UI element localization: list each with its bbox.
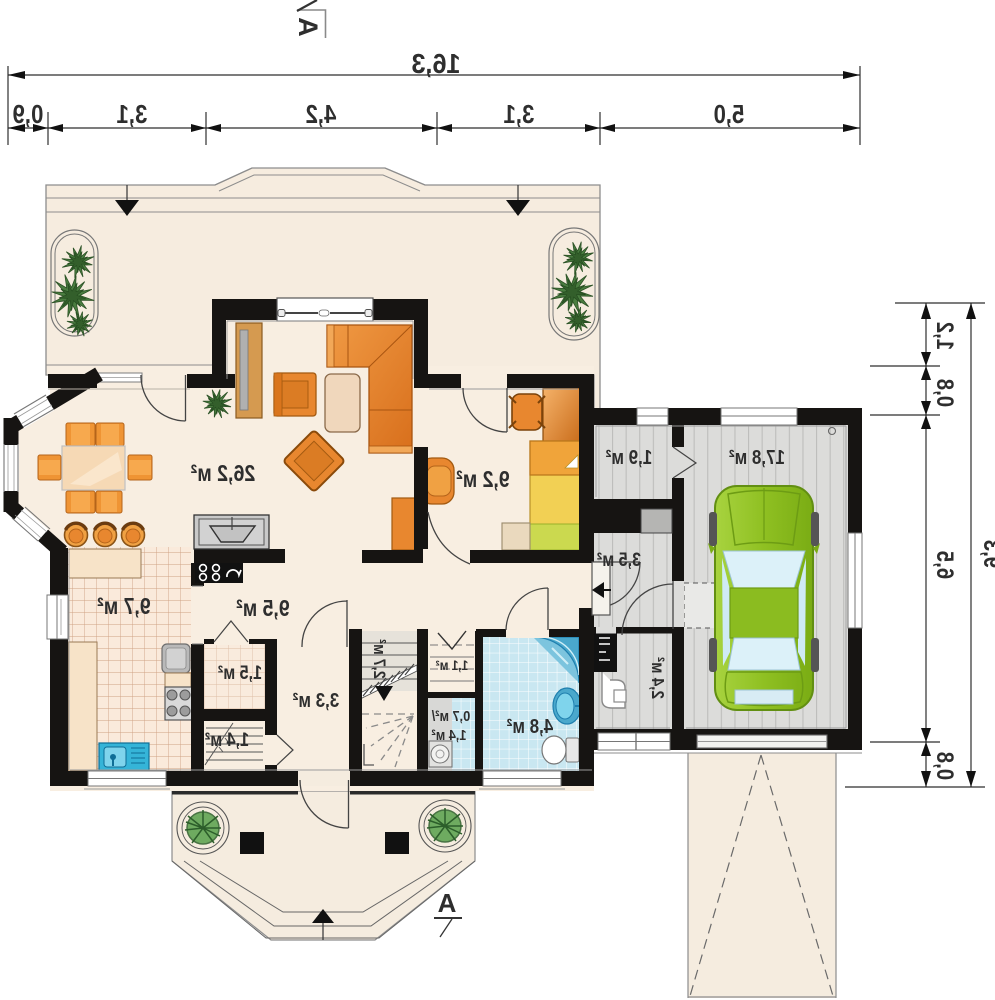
svg-text:4,8 м²: 4,8 м² xyxy=(507,715,554,738)
svg-text:0,8: 0,8 xyxy=(932,752,959,780)
svg-text:6,5: 6,5 xyxy=(932,551,959,579)
svg-text:3,1: 3,1 xyxy=(117,100,148,129)
svg-text:4,2: 4,2 xyxy=(306,100,337,129)
svg-text:9,2 м²: 9,2 м² xyxy=(456,467,510,493)
svg-text:0,8: 0,8 xyxy=(932,379,959,407)
svg-text:3,3 м²: 3,3 м² xyxy=(293,689,340,712)
svg-text:1,9 м²: 1,9 м² xyxy=(606,446,653,469)
svg-text:5,0: 5,0 xyxy=(714,100,745,129)
svg-text:9,5 м²: 9,5 м² xyxy=(236,596,290,622)
svg-text:0,9: 0,9 xyxy=(13,100,44,129)
svg-text:16,3: 16,3 xyxy=(411,48,460,80)
svg-text:A: A xyxy=(293,17,323,37)
svg-text:3,1: 3,1 xyxy=(504,100,535,129)
svg-text:1,2: 1,2 xyxy=(932,322,959,350)
svg-text:2,7 м²: 2,7 м² xyxy=(370,639,388,679)
svg-text:0,7 м²/: 0,7 м²/ xyxy=(432,707,471,724)
svg-text:3,5 м²: 3,5 м² xyxy=(597,549,641,571)
svg-text:9,3: 9,3 xyxy=(979,540,995,568)
svg-text:26,2 м²: 26,2 м² xyxy=(191,461,255,487)
svg-text:9,7 м²: 9,7 м² xyxy=(97,594,151,620)
svg-text:1,4 м²: 1,4 м² xyxy=(205,729,249,751)
svg-text:A: A xyxy=(437,888,456,918)
svg-text:17,8 м²: 17,8 м² xyxy=(729,446,785,469)
svg-text:1,1 м²: 1,1 м² xyxy=(435,657,468,673)
svg-text:1,4 м²: 1,4 м² xyxy=(431,726,466,743)
svg-text:1,5 м²: 1,5 м² xyxy=(218,662,262,684)
svg-text:2,4 м²: 2,4 м² xyxy=(648,657,668,699)
